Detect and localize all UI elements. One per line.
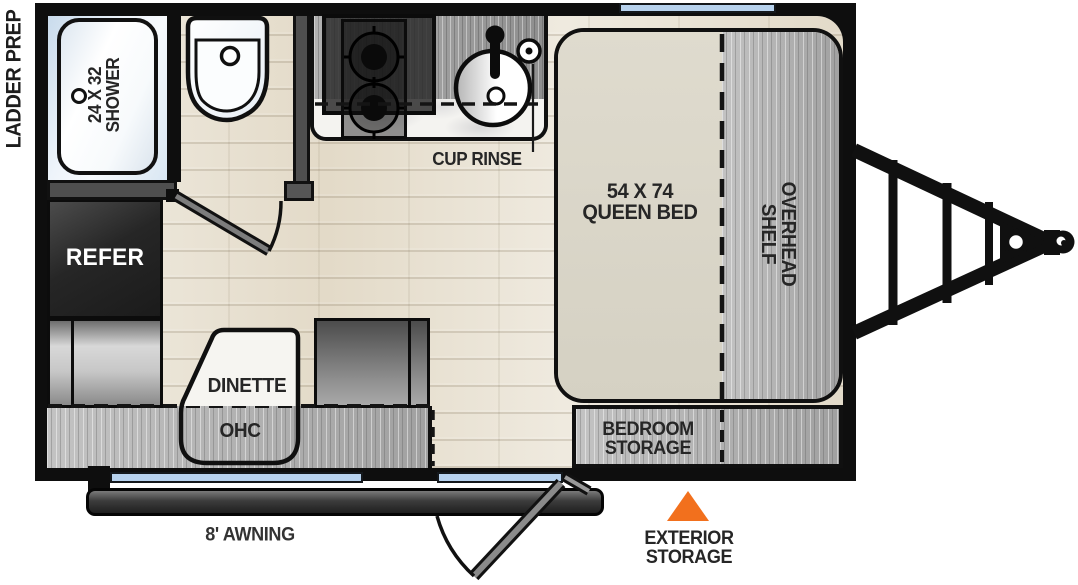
entry-door-swing-arc bbox=[437, 516, 474, 576]
exterior-storage-label-line1: EXTERIOR bbox=[644, 529, 733, 548]
exterior-storage-label-line2: STORAGE bbox=[644, 548, 733, 567]
bathroom-door-hinge bbox=[166, 189, 179, 202]
overhead-shelf-label-line2: SHELF bbox=[758, 182, 778, 287]
bathroom-wall bbox=[167, 16, 181, 182]
bedroom-storage-label-line2: STORAGE bbox=[602, 439, 694, 458]
ladder-prep-label: LADDER PREP bbox=[4, 10, 25, 149]
refrigerator-label: REFER bbox=[66, 246, 144, 270]
kitchen-wall bbox=[293, 16, 310, 183]
bathroom-wall bbox=[47, 180, 177, 200]
dinette-bench-left bbox=[47, 318, 163, 408]
exterior-storage-label: EXTERIOR STORAGE bbox=[644, 529, 733, 567]
bedroom-storage-label: BEDROOM STORAGE bbox=[602, 420, 694, 458]
bedroom-window bbox=[619, 3, 776, 13]
bench-divider bbox=[71, 321, 74, 405]
awning-bar bbox=[86, 488, 604, 516]
shower-label-line1: 24 X 32 bbox=[86, 58, 104, 133]
exterior-storage-marker-icon bbox=[667, 491, 709, 521]
cooktop-burner-panel bbox=[341, 19, 407, 139]
shower-label-line2: SHOWER bbox=[104, 58, 122, 133]
dinette-bench-right bbox=[314, 318, 430, 408]
entry-door-window bbox=[437, 472, 563, 483]
bed-label-line2: QUEEN BED bbox=[582, 202, 697, 223]
dinette-window bbox=[110, 472, 363, 483]
bed-label-line1: 54 X 74 bbox=[582, 181, 697, 202]
shower-label: 24 X 32 SHOWER bbox=[86, 58, 122, 133]
queen-bed-label: 54 X 74 QUEEN BED bbox=[582, 181, 697, 223]
bedroom-storage-label-line1: BEDROOM bbox=[602, 420, 694, 439]
dinette-label: DINETTE bbox=[208, 376, 287, 396]
awning-label: 8' AWNING bbox=[205, 526, 294, 545]
ohc-label: OHC bbox=[219, 421, 260, 441]
bench-divider bbox=[408, 321, 411, 405]
overhead-shelf-label-line1: OVERHEAD bbox=[778, 182, 798, 287]
cup-rinse-label: CUP RINSE bbox=[432, 150, 521, 168]
overhead-shelf-label: OVERHEAD SHELF bbox=[758, 182, 798, 287]
doorway-wall-cap bbox=[284, 181, 314, 201]
floor-plan: LADDER PREP 24 X 32 SHOWER REFER CUP RIN… bbox=[0, 0, 1078, 585]
hitch-frame-icon bbox=[854, 150, 1075, 333]
